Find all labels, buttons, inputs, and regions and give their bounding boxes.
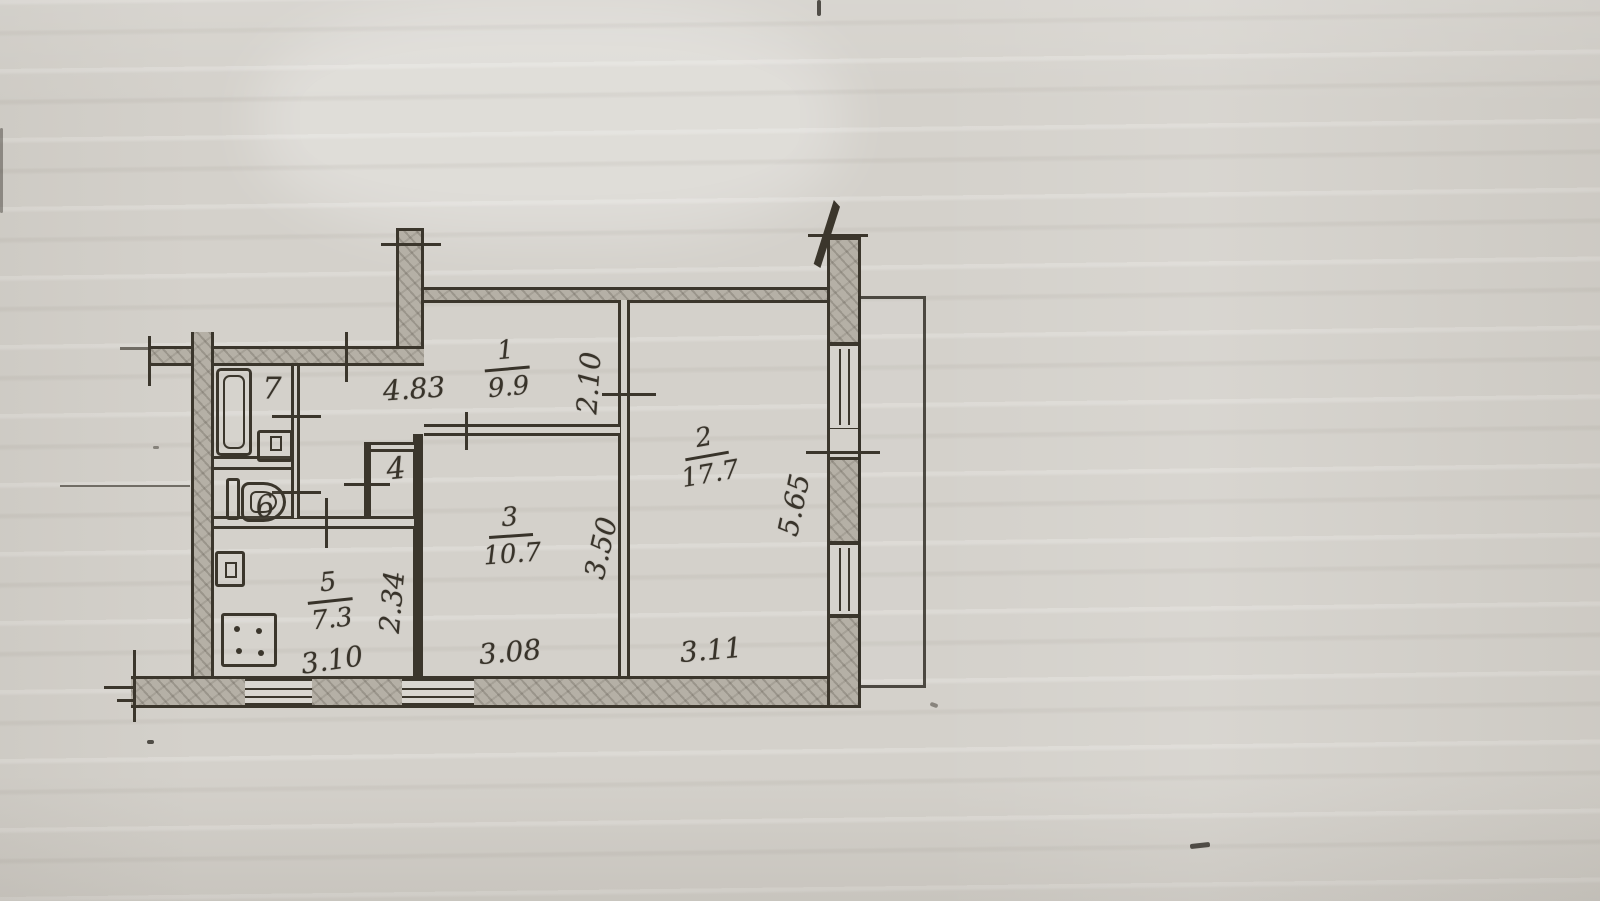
dim-room2-depth: 5.65 xyxy=(771,471,816,539)
door-tick-bathroom xyxy=(272,415,321,418)
kitchen-sink xyxy=(215,551,245,587)
bottom-extension-line-b xyxy=(117,699,133,702)
room2-label: 2 17.7 xyxy=(673,420,741,492)
stove-burner xyxy=(236,648,242,654)
scan-mark xyxy=(817,0,821,16)
paper-light-patch xyxy=(300,45,800,195)
room4-number: 4 xyxy=(385,451,408,488)
window-right-lower xyxy=(827,542,861,617)
hall-wall-extension-line xyxy=(120,347,150,350)
stub-top-tick xyxy=(381,243,441,246)
window-pane-line xyxy=(245,688,312,690)
window-pane-line xyxy=(245,696,312,698)
bathtub xyxy=(216,368,252,456)
door-tick-room1-room2 xyxy=(602,393,656,396)
scan-mark xyxy=(1190,842,1210,849)
wall-lobby-top xyxy=(366,442,414,452)
window-pane-line xyxy=(839,349,841,425)
stove-burner xyxy=(258,650,264,656)
right-wall-top-tick xyxy=(808,234,868,237)
room3-area: 10.7 xyxy=(482,535,542,569)
wall-room1-room2 xyxy=(618,300,630,676)
toilet-tank xyxy=(226,478,240,520)
wall-lobby-left xyxy=(364,442,371,522)
door-tick-kitchen xyxy=(325,498,328,548)
bottom-extension-line-a xyxy=(104,686,133,689)
room5-number: 5 xyxy=(305,567,353,604)
dim-room1-depth: 2.10 xyxy=(570,351,607,415)
bathroom-sink xyxy=(257,430,293,462)
wall-outer-right-pier xyxy=(827,429,861,459)
bottom-left-tick xyxy=(133,650,136,722)
sink-faucet-mark xyxy=(270,436,282,451)
bathtub-inner-line xyxy=(223,375,245,449)
wall-room1-bottom xyxy=(424,424,620,436)
room1-label: 1 9.9 xyxy=(482,336,532,403)
entry-door-tick xyxy=(345,332,348,382)
wall-outer-topleft-stub xyxy=(396,228,424,364)
room1-area: 9.9 xyxy=(487,369,531,402)
window-pane-line xyxy=(848,349,850,425)
wall-outer-bottom xyxy=(131,676,854,708)
wall-room3-left xyxy=(413,434,423,676)
dim-kitchen-depth: 2.34 xyxy=(373,570,411,635)
left-extension-line xyxy=(60,485,190,487)
hall-wall-end-tick xyxy=(148,336,151,386)
door-tick-lobby xyxy=(344,483,390,486)
window-pane-line xyxy=(848,548,850,611)
window-kitchen xyxy=(245,678,312,706)
stove-burner xyxy=(256,628,262,634)
window-pane-line xyxy=(402,696,474,698)
wall-outer-left xyxy=(191,332,214,680)
room3-number: 3 xyxy=(487,503,534,539)
dim-room2-width: 3.11 xyxy=(679,631,744,669)
room5-label: 5 7.3 xyxy=(305,567,356,634)
balcony-outline xyxy=(858,296,926,688)
stove xyxy=(221,613,277,667)
room5-area: 7.3 xyxy=(310,600,354,634)
dim-kitchen-width: 3.10 xyxy=(299,639,365,680)
dim-hall-length: 4.83 xyxy=(382,370,446,407)
kitchen-sink-basin xyxy=(225,562,237,578)
scan-mark xyxy=(153,446,159,449)
scan-mark xyxy=(930,702,939,708)
wall-outer-right-upper xyxy=(827,237,861,345)
door-tick-room1 xyxy=(465,412,468,450)
window-pane-line xyxy=(402,688,474,690)
room1-number: 1 xyxy=(482,336,529,373)
room3-label: 3 10.7 xyxy=(480,503,542,570)
stove-burner xyxy=(234,626,240,632)
dim-room3-width: 3.08 xyxy=(478,633,543,671)
room7-number: 7 xyxy=(262,372,281,407)
window-pane-line xyxy=(839,548,841,611)
wall-outer-right-lower xyxy=(827,615,861,708)
scan-mark xyxy=(147,740,154,744)
window-room3 xyxy=(402,678,474,706)
scan-mark xyxy=(0,128,3,213)
right-wall-mid-tick xyxy=(806,451,880,454)
floor-plan-scan: 7 6 4 1 9.9 2 17.7 3 10.7 5 7.3 4.83 2.1… xyxy=(0,0,1600,901)
wall-outer-right-middle xyxy=(827,457,861,544)
window-right-upper xyxy=(827,343,861,431)
